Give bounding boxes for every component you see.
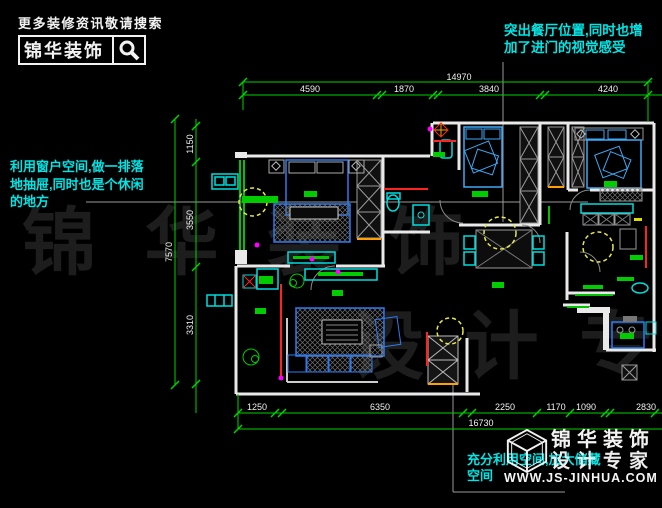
chair bbox=[533, 252, 544, 265]
sofa-seat bbox=[329, 355, 350, 372]
bed-bench bbox=[290, 207, 338, 219]
dim-top-seg-1: 4590 bbox=[300, 84, 320, 94]
dim-top-seg-2: 1870 bbox=[394, 84, 414, 94]
pillow bbox=[466, 129, 482, 139]
lamp-icon bbox=[272, 162, 280, 170]
dim-top-total: 14970 bbox=[446, 72, 471, 82]
dim-bottom-seg-5: 1090 bbox=[576, 402, 596, 412]
hood bbox=[623, 316, 637, 322]
highlight-circle bbox=[583, 232, 613, 262]
quilt bbox=[464, 141, 497, 173]
quilt bbox=[471, 149, 498, 175]
dim-left-total: 7570 bbox=[164, 242, 174, 262]
dim-left-seg-3: 3310 bbox=[185, 315, 195, 335]
bed bbox=[464, 127, 502, 187]
annotation-window-seat: 利用窗户空间,做一排落 地抽屉,同时也是个休闲 的地方 bbox=[10, 158, 144, 211]
header-tagline: 更多装修资讯敬请搜索 bbox=[18, 13, 163, 32]
dim-left-seg-2: 3550 bbox=[185, 210, 195, 230]
pillow bbox=[317, 162, 343, 173]
annotation-dining: 突出餐厅位置,同时也增 加了进门的视觉感受 bbox=[504, 22, 643, 56]
dim-bottom-seg-3: 2250 bbox=[495, 402, 515, 412]
pillow bbox=[484, 129, 500, 139]
sofa-seat bbox=[351, 355, 372, 372]
brand-name: 锦华装饰 bbox=[20, 37, 112, 63]
quilt bbox=[603, 152, 631, 179]
bed bbox=[587, 140, 641, 188]
dim-top-seg-3: 3840 bbox=[479, 84, 499, 94]
family-area bbox=[581, 204, 648, 293]
pillow bbox=[608, 130, 626, 139]
pillow bbox=[289, 162, 315, 173]
svg-text:锦 华 装 饰: 锦 华 装 饰 bbox=[22, 201, 478, 284]
dim-top-seg-4: 4240 bbox=[598, 84, 618, 94]
chair bbox=[533, 236, 544, 249]
lamp-icon bbox=[631, 130, 639, 138]
dim-bottom-seg-6: 2830 bbox=[636, 402, 656, 412]
dim-bottom-seg-1: 1250 bbox=[247, 402, 267, 412]
dim-left-seg-1: 1150 bbox=[185, 134, 195, 153]
dim-bottom-seg-2: 6350 bbox=[370, 402, 390, 412]
footer-subtitle: 设计专家 bbox=[551, 446, 655, 473]
dim-bottom-total: 16730 bbox=[468, 418, 493, 428]
fridge bbox=[620, 229, 636, 249]
search-icon bbox=[114, 37, 144, 63]
sofa-seat bbox=[288, 355, 306, 372]
footer-website: WWW.JS-JINHUA.COM bbox=[504, 471, 658, 485]
pillow bbox=[586, 130, 604, 139]
dim-bottom-seg-4: 1170 bbox=[546, 402, 565, 412]
sofa-seat bbox=[307, 355, 328, 372]
brand-search-box: 锦华装饰 bbox=[18, 35, 146, 65]
floor-plan-screenshot: 锦 华 装 饰 设 计 专 家 bbox=[0, 0, 662, 508]
bedroom-2 bbox=[433, 127, 564, 187]
entry-door-symbol bbox=[434, 123, 448, 137]
rug bbox=[600, 188, 642, 201]
sink bbox=[632, 283, 648, 293]
sofa-back bbox=[581, 204, 633, 213]
